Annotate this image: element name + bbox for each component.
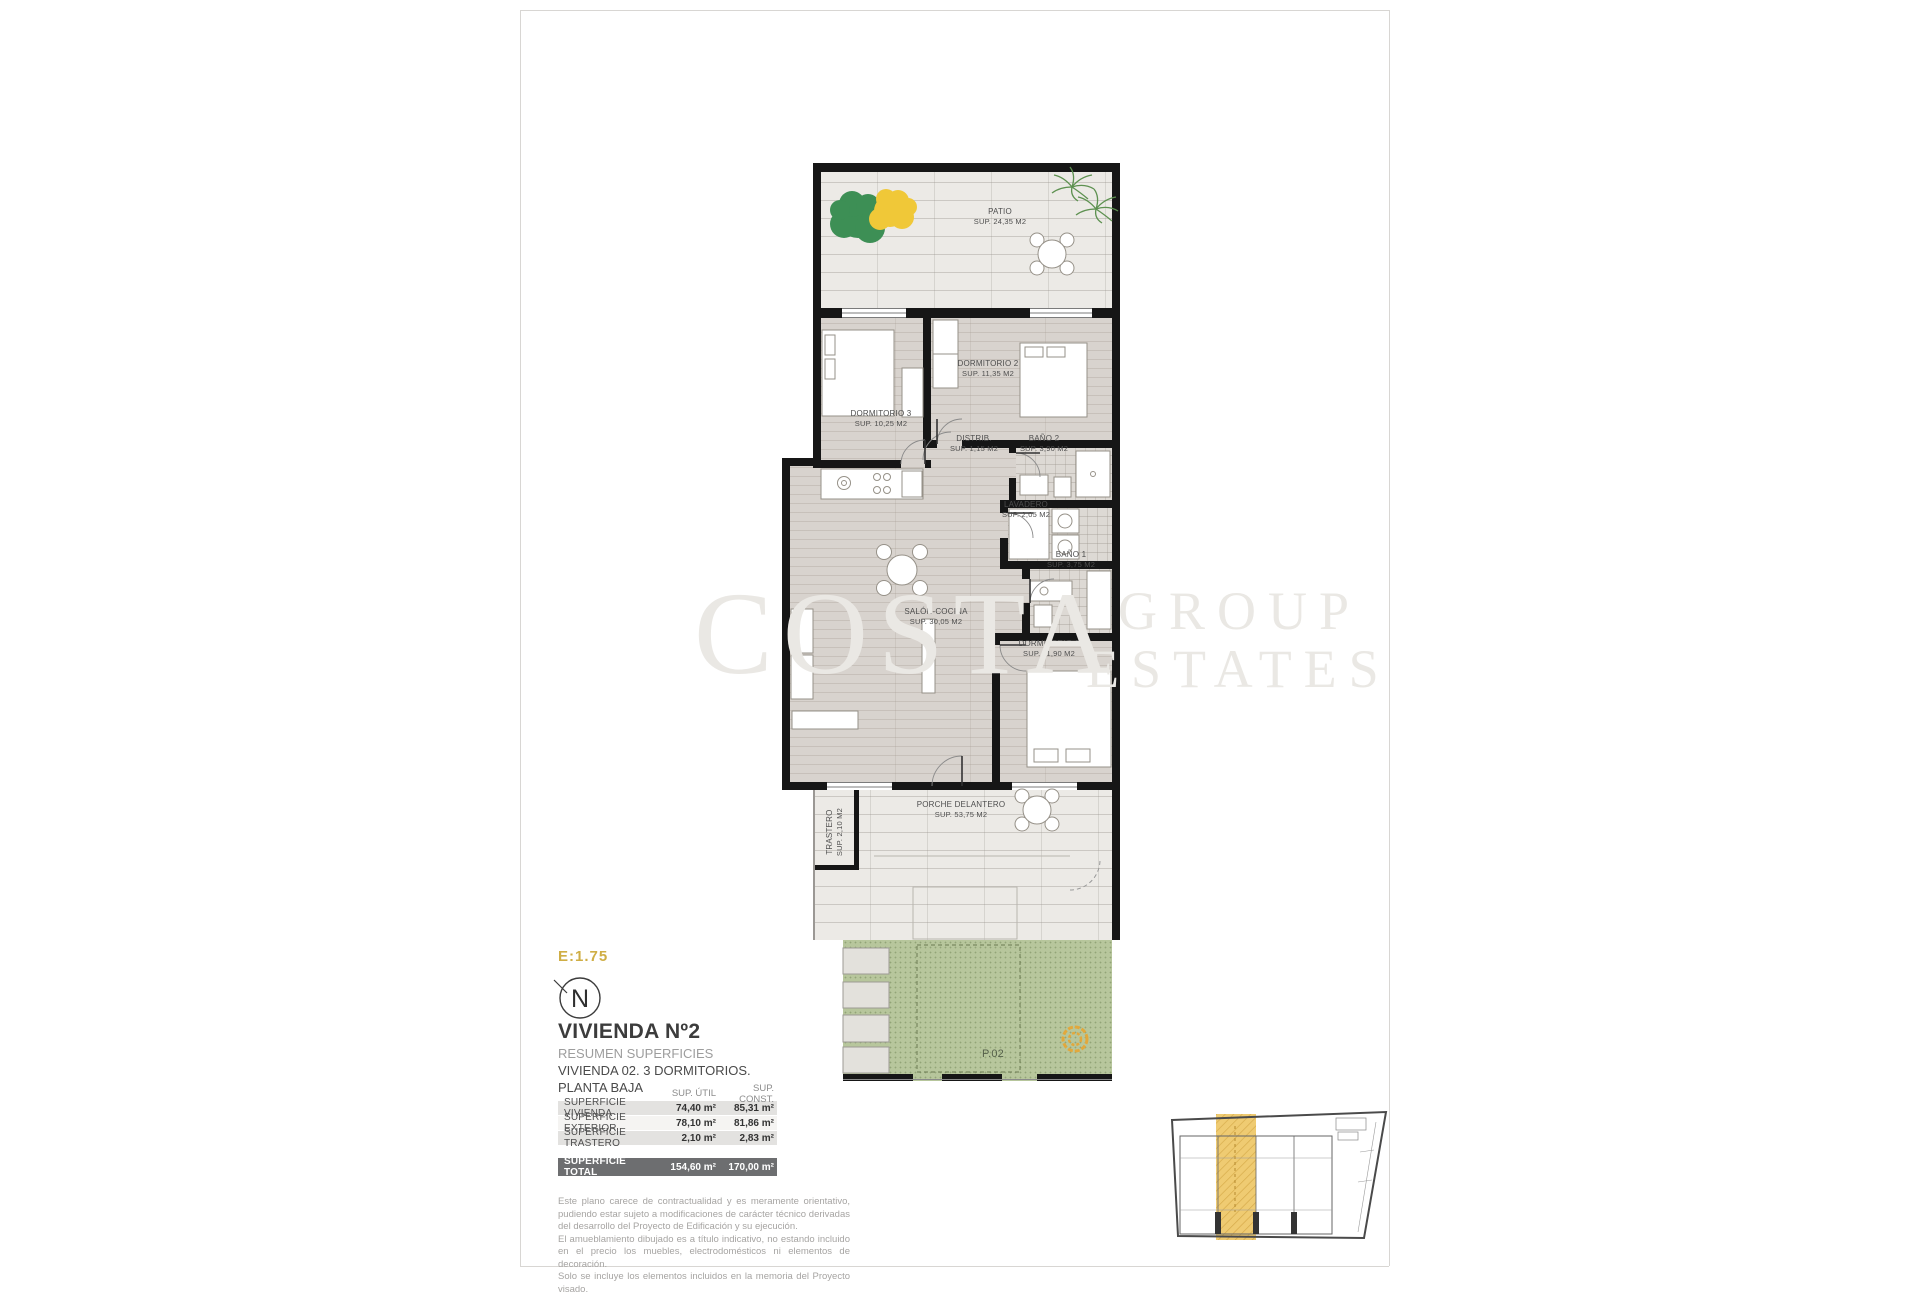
room-name: DORMITORIO 3 (831, 409, 931, 419)
total-const: 170,00 m² (716, 1162, 777, 1173)
room-name: PORCHE DELANTERO (911, 800, 1011, 810)
unit-subtitle: RESUMEN SUPERFICIES (558, 1046, 713, 1061)
room-label-distrib: DISTRIB. SUP. 1,15 M2 (939, 434, 1009, 454)
areas-table: SUP. ÚTIL SUP. CONST. SUPERFICIE VIVIEND… (558, 1086, 777, 1176)
room-area: SUP. 3,75 M2 (1036, 560, 1106, 570)
north-letter: N (571, 985, 589, 1013)
row-util: 2,10 m² (660, 1133, 716, 1144)
room-name: LAVADERO (991, 500, 1061, 510)
room-area: SUP. 2,10 M2 (835, 794, 845, 870)
plot-label: P.02 (963, 1047, 1023, 1061)
room-name: TRASTERO (825, 794, 835, 870)
row-util: 74,40 m² (660, 1103, 716, 1114)
row-const: 81,86 m² (716, 1118, 777, 1129)
room-label-patio: PATIO SUP. 24,35 M2 (960, 207, 1040, 227)
watermark-word-2: GROUP (1118, 580, 1361, 642)
watermark-word-3: ESTATES (1086, 638, 1391, 700)
scale-label: E:1.75 (558, 948, 608, 965)
sheet-border-top (520, 10, 1389, 11)
disclaimer: Este plano carece de contractualidad y e… (558, 1196, 850, 1296)
room-area: SUP. 30,05 M2 (886, 617, 986, 627)
room-area: SUP. 2,05 M2 (991, 510, 1061, 520)
room-label-dormitorio3: DORMITORIO 3 SUP. 10,25 M2 (831, 409, 931, 429)
table-row: SUPERFICIE TRASTERO 2,10 m² 2,83 m² (558, 1131, 777, 1145)
room-area: SUP. 1,15 M2 (939, 444, 1009, 454)
room-name: SALÓN-COCINA (886, 607, 986, 617)
room-area: SUP. 24,35 M2 (960, 217, 1040, 227)
unit-title: VIVIENDA Nº2 (558, 1020, 700, 1044)
room-area: SUP. 11,90 M2 (999, 649, 1099, 659)
room-name: BAÑO 1 (1036, 550, 1106, 560)
room-area: SUP. 53,75 M2 (911, 810, 1011, 820)
room-label-trastero: TRASTERO SUP. 2,10 M2 (797, 794, 873, 870)
tree-yellow-icon (869, 189, 917, 230)
key-plan (1162, 1092, 1388, 1245)
row-const: 2,83 m² (716, 1133, 777, 1144)
col-header-util: SUP. ÚTIL (660, 1088, 716, 1099)
room-name: BAÑO 2 (1009, 434, 1079, 444)
room-name: DORMITORIO 1 (999, 639, 1099, 649)
disclaimer-paragraph: El amueblamiento dibujado es a título in… (558, 1234, 850, 1272)
room-label-bano2: BAÑO 2 SUP. 3,90 M2 (1009, 434, 1079, 454)
room-name: DISTRIB. (939, 434, 1009, 444)
room-label-lavadero: LAVADERO SUP. 2,05 M2 (991, 500, 1061, 520)
room-area: SUP. 3,90 M2 (1009, 444, 1079, 454)
row-const: 85,31 m² (716, 1103, 777, 1114)
room-label-dormitorio1: DORMITORIO 1 SUP. 11,90 M2 (999, 639, 1099, 659)
disclaimer-paragraph: Este plano carece de contractualidad y e… (558, 1196, 850, 1234)
room-label-porche: PORCHE DELANTERO SUP. 53,75 M2 (911, 800, 1011, 820)
plan-sheet: PATIO SUP. 24,35 M2 DORMITORIO 2 SUP. 11… (0, 0, 1920, 1280)
palm-icon (1052, 167, 1118, 223)
total-util: 154,60 m² (660, 1162, 716, 1173)
room-area: SUP. 10,25 M2 (831, 419, 931, 429)
highlighted-unit (1216, 1114, 1256, 1240)
north-compass: N (552, 970, 606, 1024)
col-header-const: SUP. CONST. (716, 1083, 777, 1105)
row-label: SUPERFICIE TRASTERO (558, 1127, 660, 1149)
room-label-bano1: BAÑO 1 SUP. 3,75 M2 (1036, 550, 1106, 570)
sheet-border-left (520, 10, 521, 1266)
room-area: SUP. 11,35 M2 (938, 369, 1038, 379)
room-name: DORMITORIO 2 (938, 359, 1038, 369)
sheet-border-right (1389, 10, 1390, 1266)
room-name: PATIO (960, 207, 1040, 217)
floor-plan: PATIO SUP. 24,35 M2 DORMITORIO 2 SUP. 11… (782, 163, 1122, 1088)
disclaimer-paragraph: Solo se incluye los elementos incluidos … (558, 1271, 850, 1296)
row-util: 78,10 m² (660, 1118, 716, 1129)
room-label-dormitorio2: DORMITORIO 2 SUP. 11,35 M2 (938, 359, 1038, 379)
table-total-row: SUPERFICIE TOTAL 154,60 m² 170,00 m² (558, 1158, 777, 1176)
unit-description: VIVIENDA 02. 3 DORMITORIOS. (558, 1063, 751, 1078)
room-label-salon-cocina: SALÓN-COCINA SUP. 30,05 M2 (886, 607, 986, 627)
total-label: SUPERFICIE TOTAL (558, 1156, 660, 1178)
